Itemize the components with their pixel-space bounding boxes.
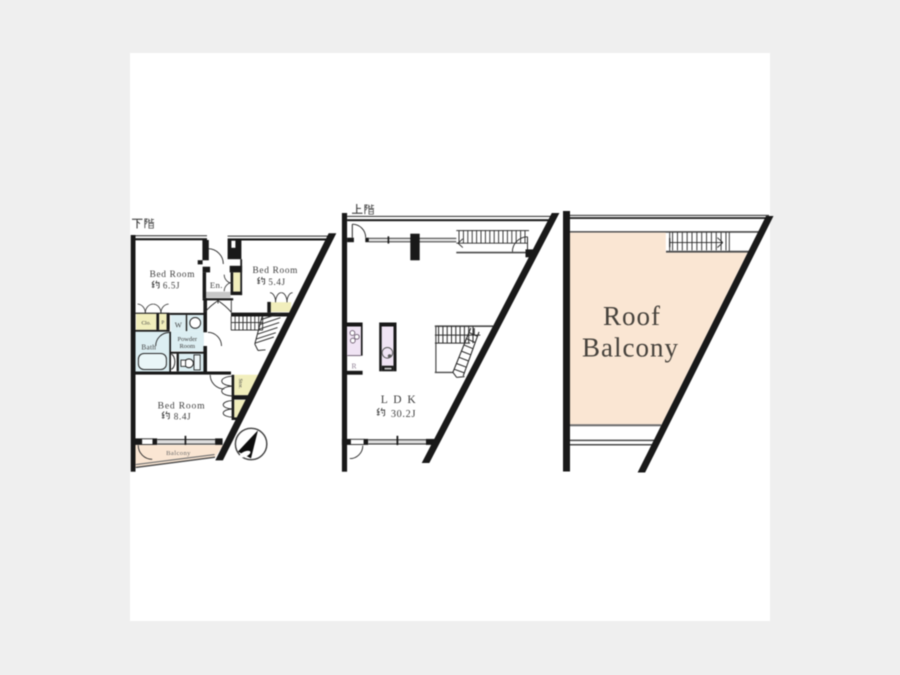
svg-text:Bed Room: Bed Room: [252, 266, 298, 276]
svg-text:W: W: [175, 320, 183, 329]
svg-text:Powder: Powder: [178, 336, 198, 343]
svg-text:Bed Room: Bed Room: [158, 400, 206, 411]
svg-text:Balcony: Balcony: [582, 333, 679, 363]
svg-text:6.5J: 6.5J: [163, 281, 180, 291]
svg-text:Balcony: Balcony: [166, 450, 191, 457]
svg-text:L D K: L D K: [381, 394, 417, 406]
svg-text:En.: En.: [210, 280, 223, 290]
svg-text:Bath: Bath: [141, 344, 156, 352]
svg-text:5.4J: 5.4J: [268, 277, 285, 287]
svg-text:Stor.: Stor.: [237, 379, 243, 389]
svg-text:8.4J: 8.4J: [174, 411, 191, 421]
svg-text:Room: Room: [179, 343, 195, 350]
svg-text:P: P: [161, 320, 164, 326]
svg-text:Clo.: Clo.: [141, 320, 151, 326]
svg-text:30.2J: 30.2J: [391, 409, 416, 420]
svg-text:Roof: Roof: [603, 301, 661, 331]
svg-text:Bed Room: Bed Room: [150, 270, 196, 280]
